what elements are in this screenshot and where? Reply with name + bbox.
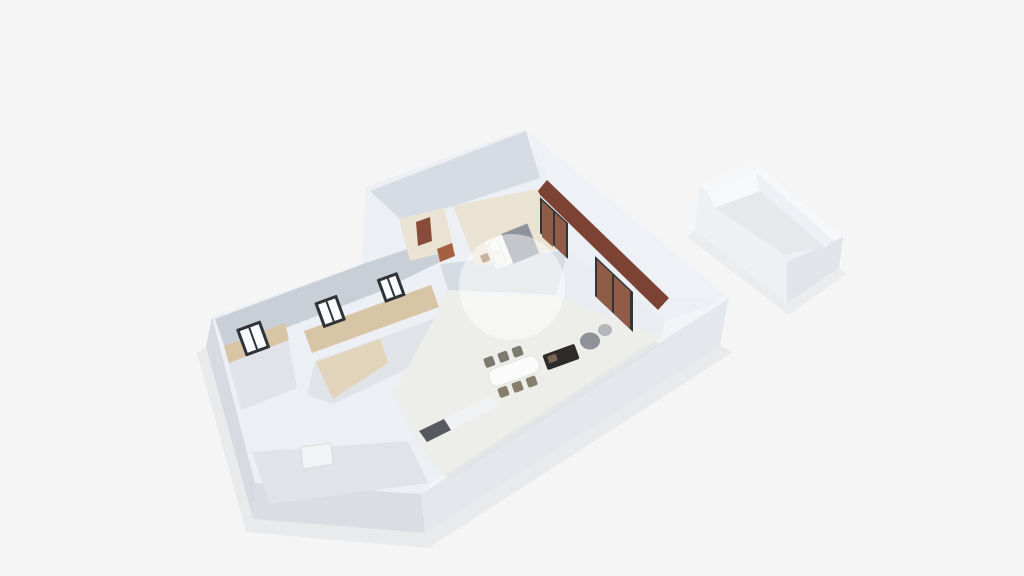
- pouf-small: [598, 324, 612, 336]
- entry-door-brown: [416, 217, 432, 246]
- watermark-circle: [459, 234, 565, 340]
- floorplan-render: [0, 0, 1024, 576]
- pouf-large: [580, 333, 600, 350]
- narrow-room-door: [301, 443, 333, 469]
- floorplan-viewport[interactable]: [0, 0, 1024, 576]
